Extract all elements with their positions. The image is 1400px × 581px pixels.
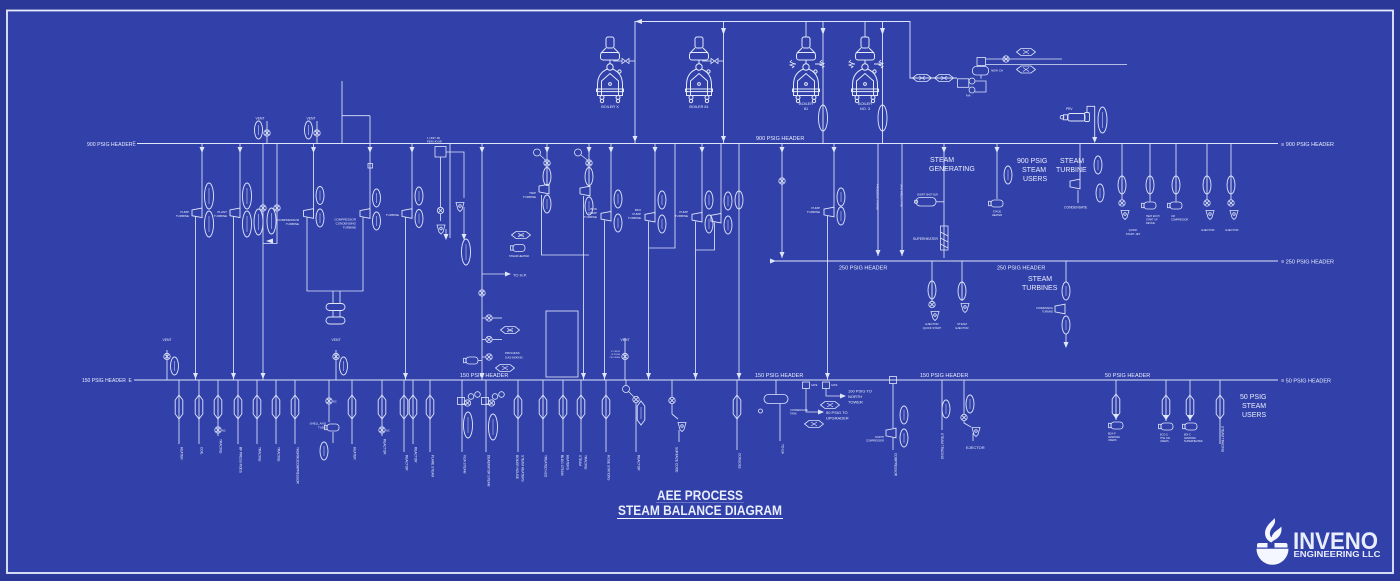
svg-text:PER HOUR: PER HOUR [427, 140, 442, 144]
svg-text:250 PSIG HEADER: 250 PSIG HEADER [997, 266, 1045, 272]
svg-text:STEAM: STEAM [1060, 158, 1084, 165]
svg-text:STEAM: STEAM [1022, 167, 1046, 174]
svg-text:TURBINE: TURBINE [214, 214, 227, 218]
svg-text:IF POSS: IF POSS [611, 354, 620, 356]
svg-text:STEAM HEATER: STEAM HEATER [509, 254, 529, 258]
svg-text:BOILER: BOILER [858, 102, 872, 106]
svg-text:150 PSIG HEADER: 150 PSIG HEADER [82, 378, 126, 384]
svg-text:DEAERATOR STEAM: DEAERATOR STEAM [487, 455, 491, 487]
svg-text:TURBINES: TURBINES [1022, 285, 1058, 292]
svg-text:100 PSIG TO: 100 PSIG TO [848, 389, 872, 394]
svg-text:TRACING: TRACING [584, 455, 588, 470]
svg-text:50 PSIG HEADER: 50 PSIG HEADER [1105, 373, 1150, 379]
svg-text:VENT: VENT [620, 338, 629, 342]
svg-text:250 PSIG HEADER: 250 PSIG HEADER [839, 266, 887, 272]
svg-text:STEAM TRACING: STEAM TRACING [1221, 426, 1225, 453]
svg-text:TO GA: TO GA [781, 444, 785, 455]
svg-text:TREATED H2O: TREATED H2O [544, 455, 548, 478]
svg-text:HEATER: HEATER [353, 447, 357, 460]
svg-text:150 PSIG HEADER: 150 PSIG HEADER [755, 373, 803, 379]
svg-text:TURBINE: TURBINE [286, 222, 299, 226]
svg-text:HOSE STATIONS: HOSE STATIONS [607, 455, 611, 480]
svg-text:ENGINEERING LLC: ENGINEERING LLC [1294, 550, 1381, 559]
svg-text:GATE: GATE [811, 384, 818, 387]
svg-text:BOILER 81: BOILER 81 [689, 105, 708, 109]
svg-text:CONSOLE: CONSOLE [738, 453, 742, 469]
svg-text:STEAM: STEAM [1242, 403, 1266, 410]
svg-text:NC: NC [386, 429, 390, 433]
svg-text:ATM: ATM [507, 329, 512, 333]
svg-text:BLDG STEAM: BLDG STEAM [560, 455, 564, 476]
svg-text:EJECTOR: EJECTOR [1225, 228, 1238, 232]
svg-text:GATE: GATE [831, 384, 838, 387]
svg-text:COMPRESSOR: COMPRESSOR [1171, 218, 1189, 221]
svg-text:PROCESS: PROCESS [505, 351, 520, 355]
svg-text:50 PSIG: 50 PSIG [1240, 394, 1266, 401]
svg-text:GAS MIXING: GAS MIXING [505, 356, 524, 360]
svg-text:SUPERHEATER: SUPERHEATER [1184, 440, 1203, 443]
svg-text:TURBINE: TURBINE [675, 214, 688, 218]
svg-text:150 PSIG HEADER: 150 PSIG HEADER [920, 373, 968, 379]
svg-text:HEATER: HEATER [180, 447, 184, 460]
svg-text:VENT: VENT [162, 338, 171, 342]
svg-text:VENT: VENT [331, 338, 340, 342]
svg-text:NC: NC [222, 429, 226, 433]
svg-text:≡ 250 PSIG HEADER: ≡ 250 PSIG HEADER [1281, 260, 1334, 266]
svg-text:TURBINE: TURBINE [176, 214, 189, 218]
svg-text:COIL: COIL [200, 447, 204, 455]
svg-text:TRACING: TRACING [219, 439, 223, 454]
svg-text:USERS: USERS [1242, 412, 1266, 419]
svg-text:FLARE STEAM: FLARE STEAM [431, 455, 435, 477]
svg-text:NC: NC [333, 400, 337, 404]
svg-text:50 PSIG TO: 50 PSIG TO [826, 410, 848, 415]
svg-text:SUPERHEATER: SUPERHEATER [913, 237, 939, 241]
svg-text:VENT: VENT [306, 117, 315, 121]
svg-text:TURBINE: TURBINE [807, 210, 820, 214]
svg-text:MA: MA [966, 94, 971, 98]
svg-text:CONDENSATE: CONDENSATE [1064, 206, 1088, 210]
svg-text:NEW CH: NEW CH [991, 69, 1003, 73]
svg-text:REACTOR: REACTOR [383, 439, 387, 455]
svg-text:NORTH: NORTH [848, 394, 862, 399]
svg-text:STEAM BALANCE DIAGRAM: STEAM BALANCE DIAGRAM [618, 503, 782, 518]
svg-text:STEAM HEATERS: STEAM HEATERS [521, 455, 525, 482]
svg-text:USERS: USERS [1023, 176, 1047, 183]
svg-text:TANK: TANK [790, 411, 797, 415]
svg-text:900 PSIG: 900 PSIG [1017, 158, 1047, 165]
svg-text:TOWER: TOWER [848, 400, 863, 405]
svg-text:QUICK START: QUICK START [923, 326, 942, 330]
svg-text:REACTOR: REACTOR [405, 455, 409, 471]
svg-text:COMPRESSOR: COMPRESSOR [866, 439, 884, 442]
svg-text:THERMOCOMPRESSOR: THERMOCOMPRESSOR [296, 447, 300, 485]
svg-text:STEAM: STEAM [1028, 276, 1052, 283]
svg-text:TRACING: TRACING [277, 447, 281, 462]
svg-text:BOILER: BOILER [799, 102, 813, 106]
svg-text:SHORT SHOT BLR: SHORT SHOT BLR [917, 194, 938, 197]
svg-text:TURBINE: TURBINE [523, 195, 536, 199]
svg-text:≡ 900 PSIG HEADER: ≡ 900 PSIG HEADER [1281, 142, 1334, 148]
svg-text:REACTOR: REACTOR [637, 455, 641, 471]
svg-text:≡ 50 PSIG HEADER: ≡ 50 PSIG HEADER [1281, 379, 1331, 385]
svg-text:TURBINE: TURBINE [1042, 310, 1053, 313]
svg-text:COMPRESSOR: COMPRESSOR [894, 453, 898, 477]
svg-text:STEAM TRACING: STEAM TRACING [940, 433, 944, 460]
svg-text:OIL OFRG: OIL OFRG [610, 357, 621, 359]
svg-text:VENT: VENT [255, 117, 264, 121]
svg-text:STEAM: STEAM [578, 455, 582, 466]
svg-text:900 PSIG HEADER: 900 PSIG HEADER [87, 142, 133, 148]
svg-text:START JET: START JET [1126, 232, 1141, 236]
svg-text:150 PSIG HEADER: 150 PSIG HEADER [460, 373, 508, 379]
svg-text:PROCESS STEAM: PROCESS STEAM [876, 184, 880, 210]
svg-text:SURFACE COND: SURFACE COND [675, 447, 679, 473]
svg-text:TURBINE: TURBINE [386, 213, 399, 217]
svg-text:TO H.P.: TO H.P. [513, 273, 527, 278]
svg-text:USERS: USERS [1108, 439, 1117, 442]
svg-text:EJECTOR: EJECTOR [966, 445, 985, 450]
svg-text:ATM: ATM [518, 234, 523, 238]
svg-text:USERS: USERS [1160, 440, 1169, 443]
svg-text:HEATERS: HEATERS [566, 455, 570, 470]
svg-text:VGA STEAM: VGA STEAM [463, 455, 467, 474]
svg-text:900 PSIG HEADER: 900 PSIG HEADER [756, 136, 804, 142]
svg-text:TURBINE: TURBINE [343, 226, 356, 230]
svg-text:81: 81 [804, 107, 808, 111]
svg-text:EJECTOR: EJECTOR [1201, 228, 1214, 232]
svg-text:DEVICE: DEVICE [1146, 222, 1155, 225]
svg-text:UPGRADER: UPGRADER [826, 416, 849, 421]
svg-text:TURBINE: TURBINE [584, 215, 597, 219]
svg-text:NO. 3: NO. 3 [860, 107, 870, 111]
svg-text:TURBINE: TURBINE [1056, 167, 1087, 174]
svg-text:REACTOR: REACTOR [414, 447, 418, 463]
svg-text:SAS WELD STM: SAS WELD STM [900, 184, 904, 207]
svg-text:TRACING: TRACING [258, 447, 262, 462]
svg-text:STEAM: STEAM [930, 157, 954, 164]
svg-text:BOILER HOUSE: BOILER HOUSE [515, 455, 519, 479]
svg-text:EJECTOR: EJECTOR [955, 326, 968, 330]
svg-text:GENERATING: GENERATING [929, 166, 975, 173]
svg-text:BOILER X: BOILER X [601, 105, 619, 109]
svg-text:AEE PROCESS: AEE PROCESS [657, 488, 743, 503]
svg-text:4" OR 81: 4" OR 81 [611, 351, 621, 353]
svg-text:PRV: PRV [1066, 107, 1073, 111]
svg-text:HEATER: HEATER [992, 213, 1002, 217]
svg-text:BF PRESS RODS: BF PRESS RODS [239, 447, 243, 473]
svg-text:TURBINE: TURBINE [628, 216, 641, 220]
